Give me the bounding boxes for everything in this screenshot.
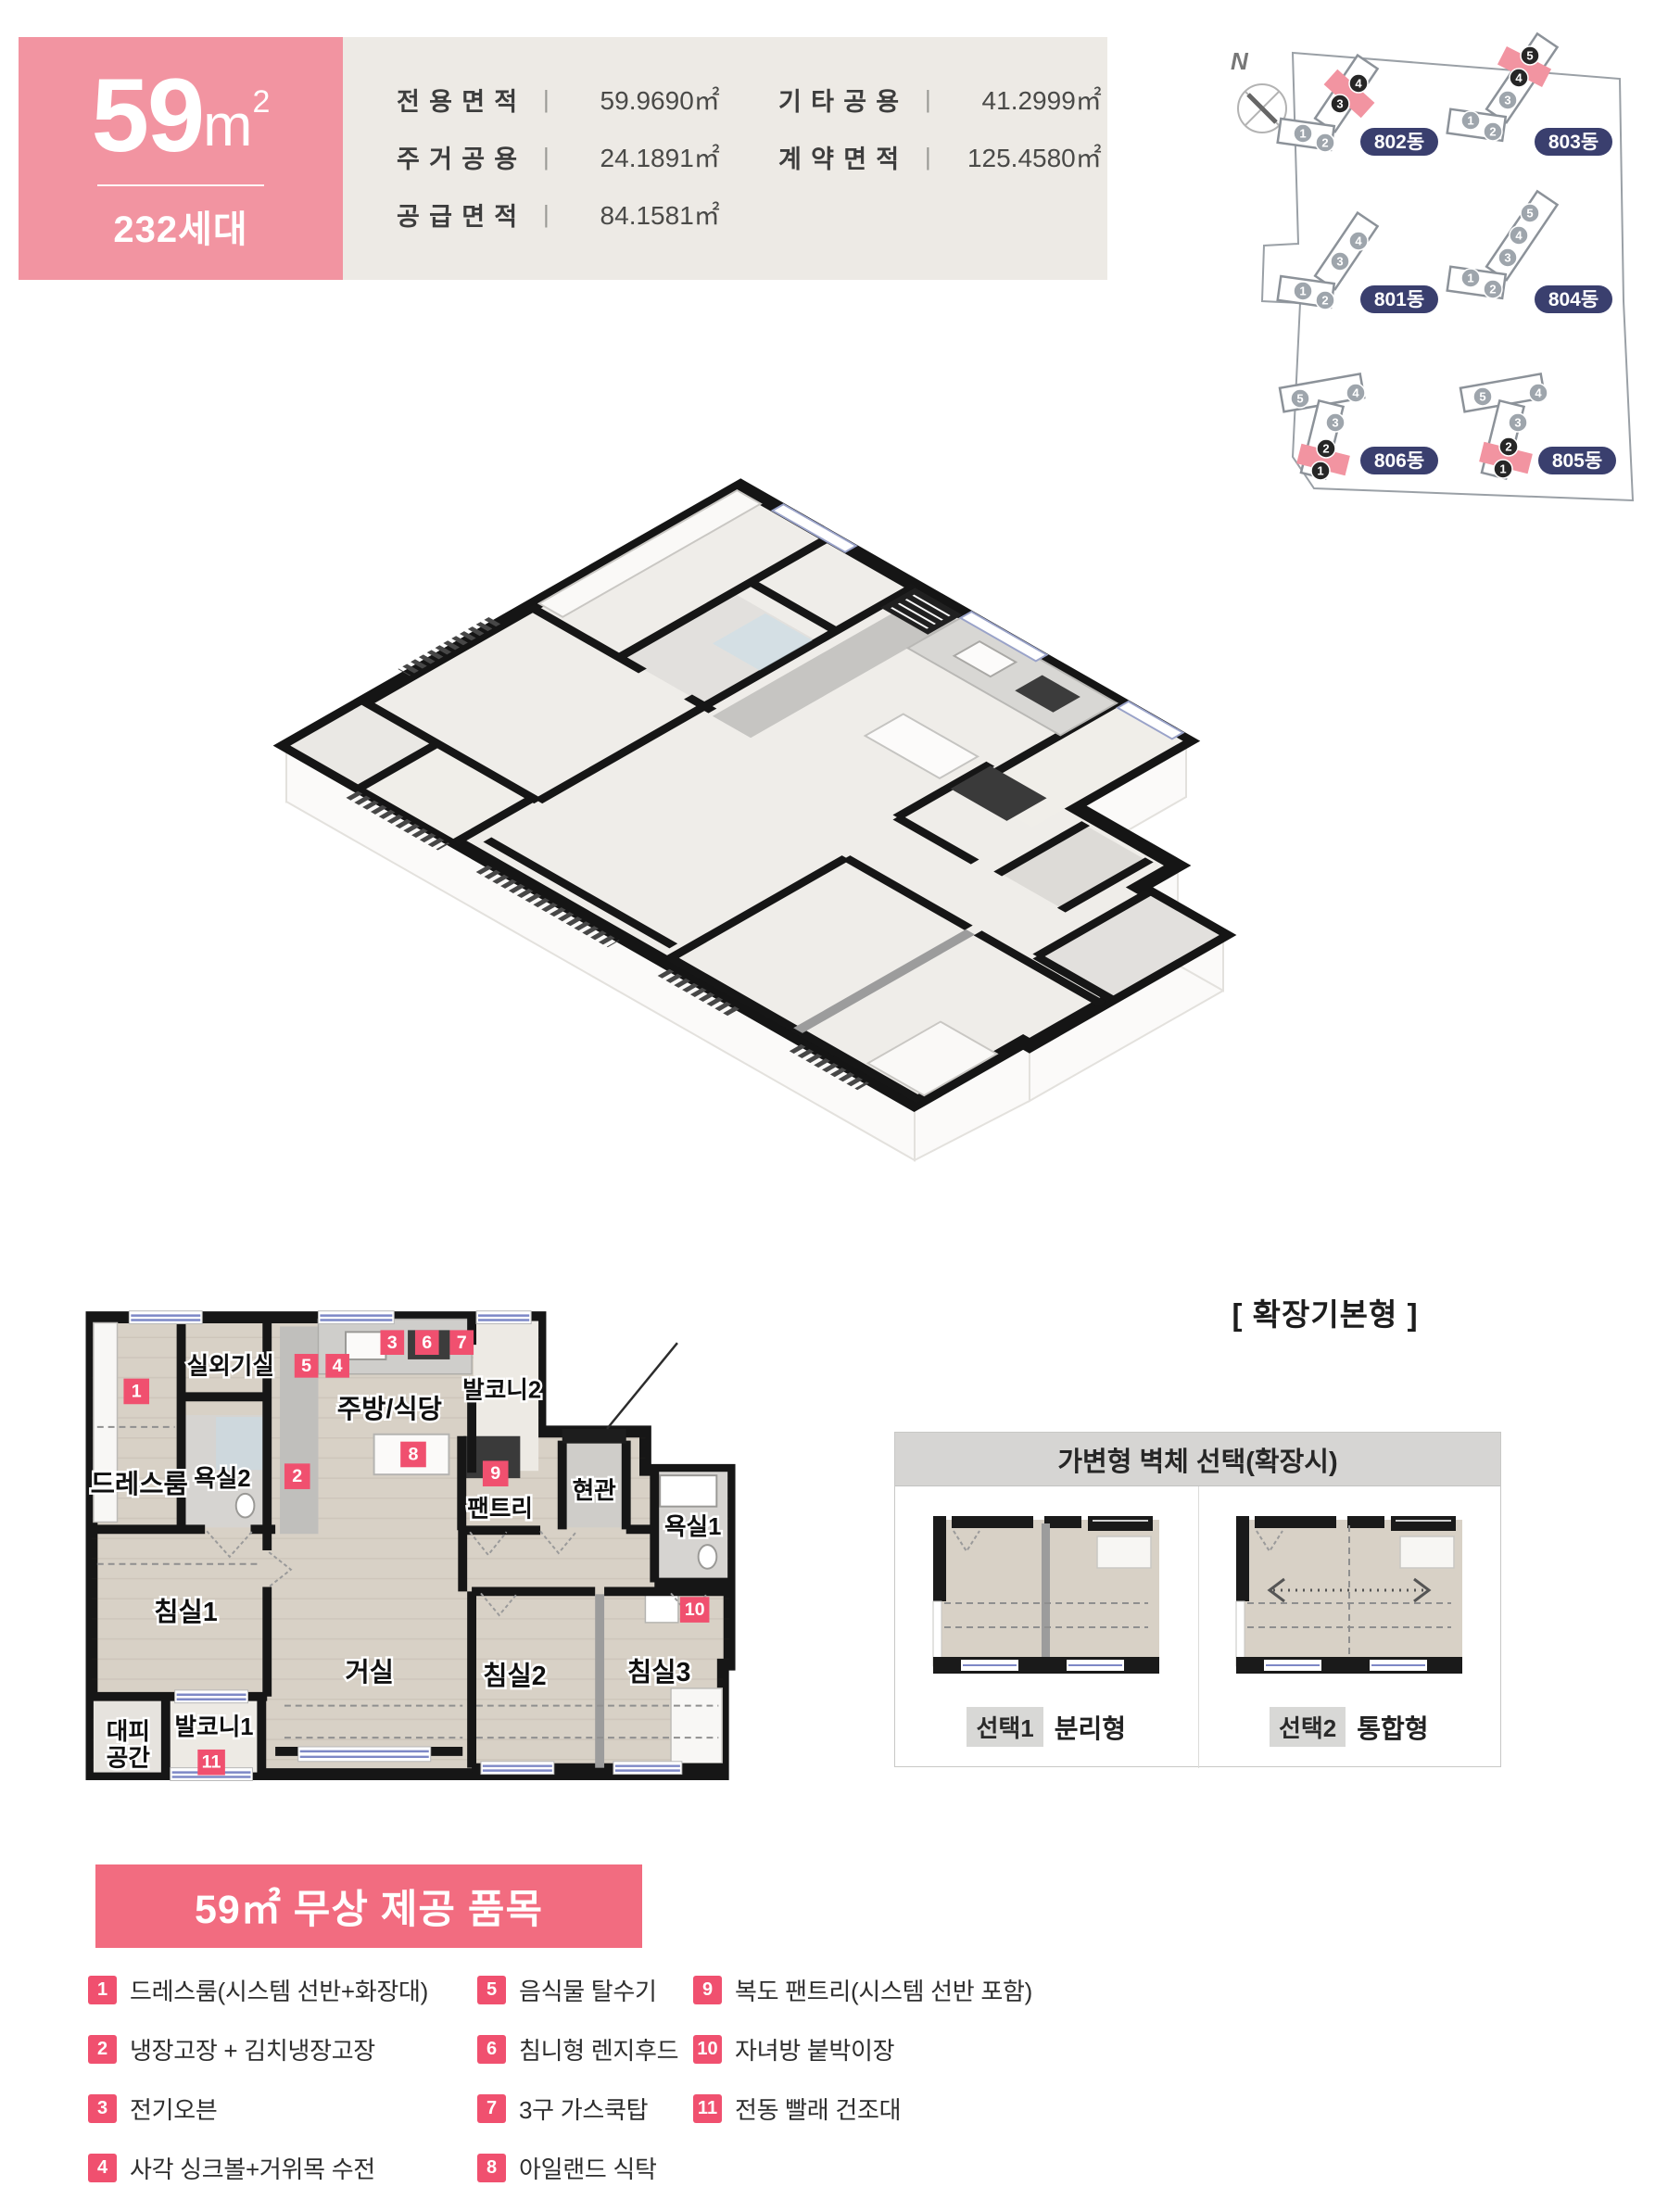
svg-text:4: 4 xyxy=(1355,77,1362,91)
svg-text:4: 4 xyxy=(1515,229,1523,243)
svg-text:4: 4 xyxy=(1515,71,1523,85)
item-number: 8 xyxy=(477,2154,506,2182)
unit-area-heading: 59m2 xyxy=(92,64,271,168)
info-label: 주거공용 xyxy=(397,139,543,175)
svg-text:2: 2 xyxy=(1489,283,1496,297)
svg-text:3: 3 xyxy=(1514,416,1521,430)
room-label: 현관 xyxy=(573,1477,617,1504)
area-info-right-column: 기타공용 | 41.2999㎡ 계약면적 | 125.4580㎡ xyxy=(778,37,1102,280)
svg-text:9: 9 xyxy=(490,1463,500,1484)
info-value: 41.2999㎡ xyxy=(933,81,1102,118)
entrance-canopy xyxy=(562,1429,626,1444)
svg-text:4: 4 xyxy=(1535,386,1542,400)
svg-text:1: 1 xyxy=(1467,272,1473,285)
svg-text:1: 1 xyxy=(1299,127,1306,141)
free-item: 6 침니형 렌지후드 xyxy=(477,2033,678,2065)
svg-text:5: 5 xyxy=(1526,49,1533,63)
svg-text:4: 4 xyxy=(333,1356,343,1376)
pipe-divider: | xyxy=(543,143,550,171)
unit-type-box: 59m2 232세대 xyxy=(19,37,343,280)
room-label: 발코니1 xyxy=(175,1713,254,1740)
item-text: 3구 가스쿡탑 xyxy=(519,2092,648,2126)
wall-option-body: 선택1 분리형 xyxy=(895,1486,1500,1768)
floorplan-3d xyxy=(250,352,1413,1293)
svg-text:5: 5 xyxy=(301,1356,311,1376)
room-label: 실외기실 xyxy=(187,1353,274,1380)
info-row: 기타공용 | 41.2999㎡ xyxy=(778,80,1102,119)
svg-text:11: 11 xyxy=(202,1752,221,1773)
svg-text:3: 3 xyxy=(387,1333,398,1353)
item-number: 9 xyxy=(693,1976,722,2004)
room-label: 침실2 xyxy=(483,1662,546,1691)
option2-plan xyxy=(1229,1510,1470,1687)
svg-text:2: 2 xyxy=(292,1466,302,1486)
item-text: 냉장고장 + 김치냉장고장 xyxy=(130,2032,375,2067)
room-label: 침실3 xyxy=(627,1658,690,1687)
svg-text:5: 5 xyxy=(1526,207,1533,221)
leader-line xyxy=(607,1343,677,1429)
room-label: 주방/식당 xyxy=(337,1395,442,1424)
room-label: 대피 xyxy=(107,1718,150,1745)
shower-glass xyxy=(216,1417,263,1470)
plan3d-caption: [ 확장기본형 ] xyxy=(1186,1290,1464,1334)
item-number: 1 xyxy=(88,1976,117,2004)
info-row: 계약면적 | 125.4580㎡ xyxy=(778,137,1102,176)
option1-plan xyxy=(926,1510,1167,1687)
room-label: 팬트리 xyxy=(467,1496,533,1523)
room-label: 공간 xyxy=(107,1745,151,1772)
option-tag: 선택2 xyxy=(1270,1707,1346,1747)
free-item: 10 자녀방 붙박이장 xyxy=(693,2033,894,2065)
svg-text:2: 2 xyxy=(1321,136,1328,150)
builtin-shelf xyxy=(645,1595,677,1623)
divider xyxy=(97,184,264,186)
item-text: 사각 싱크볼+거위목 수전 xyxy=(130,2151,375,2185)
area-superscript: 2 xyxy=(252,86,270,118)
room-label: 욕실1 xyxy=(664,1513,721,1540)
dividing-wall xyxy=(1042,1523,1050,1664)
item-number: 5 xyxy=(477,1976,506,2004)
svg-text:10: 10 xyxy=(685,1599,705,1620)
svg-text:3: 3 xyxy=(1504,94,1510,107)
area-info-panel: 전용면적 | 59.9690㎡ 주거공용 | 24.1891㎡ 공급면적 | 8… xyxy=(343,37,1107,280)
svg-text:3: 3 xyxy=(1336,97,1343,111)
item-text: 드레스룸(시스템 선반+화장대) xyxy=(130,1973,428,2007)
free-item: 5 음식물 탈수기 xyxy=(477,1974,657,2005)
room-label: 욕실2 xyxy=(194,1465,250,1492)
info-row: 주거공용 | 24.1891㎡ xyxy=(397,137,720,176)
info-value: 84.1581㎡ xyxy=(551,196,720,233)
building-badge-label: 804동 xyxy=(1548,289,1598,310)
item-text: 자녀방 붙박이장 xyxy=(735,2032,894,2067)
compass-icon: N xyxy=(1231,47,1286,133)
option-name: 통합형 xyxy=(1357,1709,1428,1746)
info-label: 계약면적 xyxy=(778,139,925,175)
item-number: 11 xyxy=(693,2094,722,2123)
free-item: 2 냉장고장 + 김치냉장고장 xyxy=(88,2033,375,2065)
info-row: 전용면적 | 59.9690㎡ xyxy=(397,80,720,119)
wall-option-panel: 가변형 벽체 선택(확장시) xyxy=(894,1432,1501,1767)
building-badge-label: 805동 xyxy=(1552,450,1602,472)
svg-text:8: 8 xyxy=(409,1444,419,1464)
item-number: 2 xyxy=(88,2035,117,2064)
room-label: 드레스룸 xyxy=(91,1470,188,1499)
room-label: 거실 xyxy=(345,1658,394,1687)
free-item: 11 전동 빨래 건조대 xyxy=(693,2092,901,2124)
svg-text:4: 4 xyxy=(1355,234,1362,248)
sink xyxy=(346,1332,385,1359)
svg-text:N: N xyxy=(1231,47,1249,75)
free-item: 4 사각 싱크볼+거위목 수전 xyxy=(88,2152,375,2183)
free-item: 9 복도 팬트리(시스템 선반 포함) xyxy=(693,1974,1032,2005)
item-text: 침니형 렌지후드 xyxy=(519,2032,678,2067)
item-number: 10 xyxy=(693,2035,722,2064)
item-number: 7 xyxy=(477,2094,506,2123)
info-value: 24.1891㎡ xyxy=(551,138,720,175)
info-value: 125.4580㎡ xyxy=(933,138,1102,175)
free-item: 3 전기오븐 xyxy=(88,2092,217,2124)
item-number: 6 xyxy=(477,2035,506,2064)
floorplan-2d: 실외기실 드레스룸 욕실2 주방/식당 발코니2 팬트리 현관 욕실1 침실1 … xyxy=(79,1290,746,1811)
info-value: 59.9690㎡ xyxy=(551,81,720,118)
item-number: 4 xyxy=(88,2154,117,2182)
option2-caption: 선택2 통합형 xyxy=(1198,1707,1501,1747)
info-label: 기타공용 xyxy=(778,82,925,118)
svg-text:2: 2 xyxy=(1505,440,1511,454)
item-text: 복도 팬트리(시스템 선반 포함) xyxy=(735,1973,1032,2007)
wardrobe xyxy=(671,1688,722,1763)
info-label: 전용면적 xyxy=(397,82,543,118)
area-info-left-column: 전용면적 | 59.9690㎡ 주거공용 | 24.1891㎡ 공급면적 | 8… xyxy=(397,37,720,280)
item-text: 아일랜드 식탁 xyxy=(519,2151,657,2185)
area-unit: m xyxy=(203,95,252,155)
pipe-divider: | xyxy=(925,85,931,114)
toilet xyxy=(699,1545,717,1569)
area-value: 59 xyxy=(92,64,204,168)
option1-panel: 선택1 분리형 xyxy=(895,1486,1198,1768)
option-name: 분리형 xyxy=(1055,1709,1126,1746)
svg-text:2: 2 xyxy=(1321,294,1328,308)
building-badge-label: 802동 xyxy=(1374,132,1424,153)
svg-text:2: 2 xyxy=(1489,125,1496,139)
bathtub xyxy=(660,1475,716,1507)
svg-text:3: 3 xyxy=(1336,255,1343,269)
item-text: 음식물 탈수기 xyxy=(519,1973,657,2007)
svg-text:1: 1 xyxy=(1499,462,1506,476)
item-text: 전동 빨래 건조대 xyxy=(735,2092,901,2126)
item-text: 전기오븐 xyxy=(130,2092,217,2126)
room-label: 발코니2 xyxy=(462,1376,541,1403)
svg-text:7: 7 xyxy=(457,1333,467,1353)
svg-text:5: 5 xyxy=(1479,390,1485,404)
option-tag: 선택1 xyxy=(967,1707,1042,1747)
free-item: 7 3구 가스쿡탑 xyxy=(477,2092,648,2124)
svg-text:6: 6 xyxy=(422,1333,432,1353)
svg-text:1: 1 xyxy=(1299,284,1306,298)
room-label: 침실1 xyxy=(154,1598,218,1627)
svg-text:1: 1 xyxy=(1467,114,1473,128)
iso-plan xyxy=(272,480,1381,1114)
pipe-divider: | xyxy=(543,85,550,114)
option1-caption: 선택1 분리형 xyxy=(895,1707,1198,1747)
brochure-page: 59m2 232세대 전용면적 | 59.9690㎡ 주거공용 | 24.189… xyxy=(0,0,1668,2212)
svg-text:1: 1 xyxy=(132,1381,142,1401)
household-count: 232세대 xyxy=(113,199,247,253)
building-badge-label: 803동 xyxy=(1548,132,1598,153)
toilet xyxy=(236,1494,255,1518)
sliding-wall xyxy=(595,1594,604,1767)
info-row: 공급면적 | 84.1581㎡ xyxy=(397,195,720,234)
svg-text:3: 3 xyxy=(1504,251,1510,265)
pipe-divider: | xyxy=(925,143,931,171)
free-item: 8 아일랜드 식탁 xyxy=(477,2152,657,2183)
free-item: 1 드레스룸(시스템 선반+화장대) xyxy=(88,1974,428,2005)
free-items-title: 59㎡ 무상 제공 품목 xyxy=(95,1864,642,1948)
option2-panel: 선택2 통합형 xyxy=(1198,1486,1501,1768)
pipe-divider: | xyxy=(543,200,550,229)
wall-option-title: 가변형 벽체 선택(확장시) xyxy=(895,1433,1500,1486)
item-number: 3 xyxy=(88,2094,117,2123)
building-badge-label: 801동 xyxy=(1374,289,1424,310)
info-label: 공급면적 xyxy=(397,196,543,233)
